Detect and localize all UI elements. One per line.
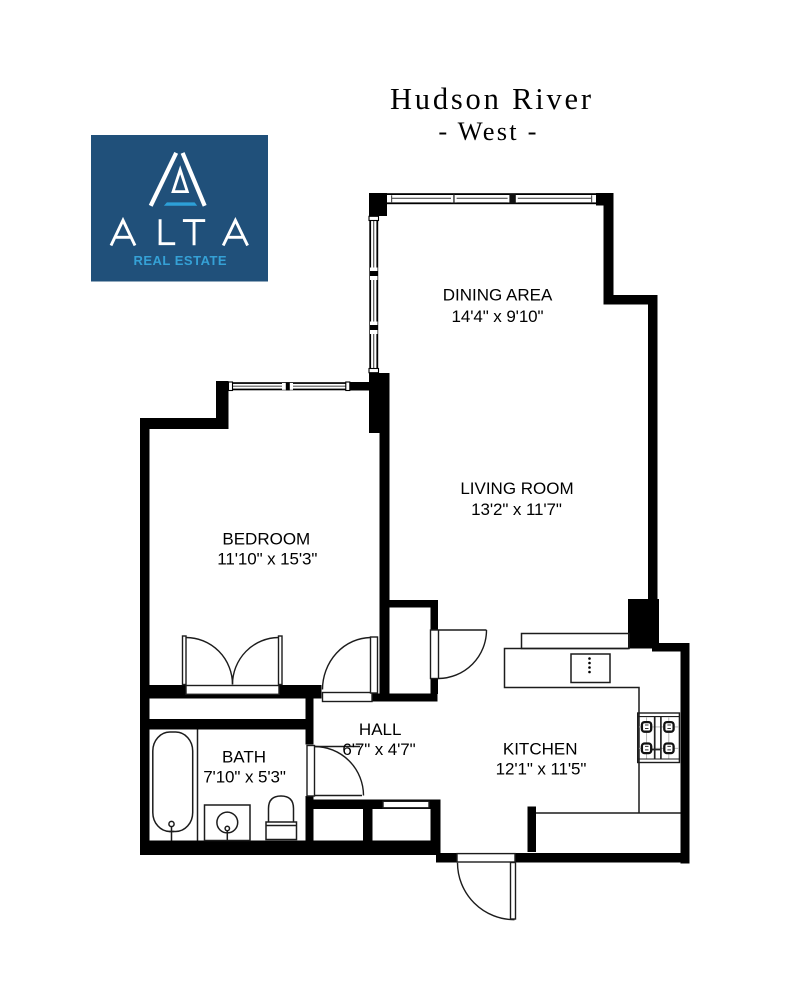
svg-text:DINING AREA: DINING AREA [443, 286, 553, 305]
svg-text:BEDROOM: BEDROOM [222, 530, 310, 549]
svg-text:- West -: - West - [438, 116, 538, 146]
svg-text:6'7" x 4'7": 6'7" x 4'7" [342, 740, 415, 759]
svg-text:Hudson River: Hudson River [390, 82, 594, 116]
svg-text:KITCHEN: KITCHEN [503, 740, 578, 759]
svg-text:11'10" x 15'3": 11'10" x 15'3" [217, 550, 317, 569]
svg-text:LIVING ROOM: LIVING ROOM [460, 479, 573, 498]
svg-text:13'2" x 11'7": 13'2" x 11'7" [471, 500, 562, 519]
svg-text:12'1" x 11'5": 12'1" x 11'5" [496, 760, 587, 779]
svg-text:BATH: BATH [222, 748, 266, 767]
svg-text:14'4" x 9'10": 14'4" x 9'10" [452, 307, 544, 326]
svg-text:REAL ESTATE: REAL ESTATE [133, 253, 227, 268]
svg-text:7'10" x 5'3": 7'10" x 5'3" [203, 768, 286, 787]
svg-text:HALL: HALL [359, 720, 402, 739]
